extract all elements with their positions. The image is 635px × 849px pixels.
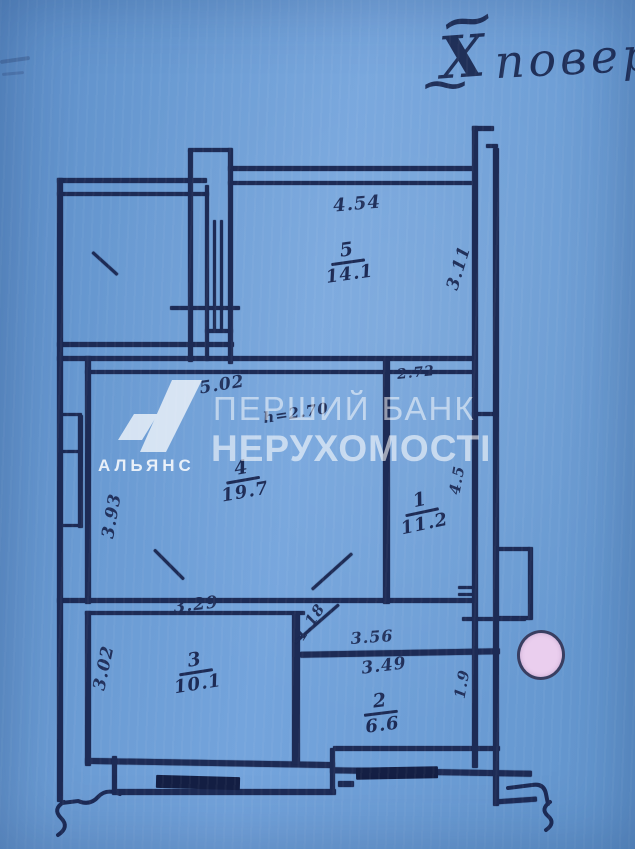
wall-segment — [153, 549, 185, 581]
wall-segment — [493, 148, 499, 806]
watermark-brand-line2: НЕРУХОМОСТІ — [211, 428, 491, 470]
wall-segment — [57, 192, 209, 196]
wall-segment — [188, 148, 232, 152]
wall-segment — [112, 756, 117, 792]
wall-segment — [213, 220, 216, 332]
wall-segment — [228, 181, 474, 185]
floor-annotation-tilde-bottom: ~ — [419, 60, 472, 109]
window-symbol — [356, 766, 438, 779]
dim-room3-depth: 3.02 — [89, 644, 118, 693]
wall-segment — [78, 415, 83, 528]
scan-smudge — [2, 71, 24, 76]
wall-segment — [57, 356, 475, 361]
wall-segment — [188, 150, 193, 362]
room-3-label: 3 10.1 — [169, 647, 223, 696]
dim-room5-width: 4.54 — [332, 191, 381, 216]
wall-segment — [85, 611, 91, 766]
dim-hallway-width: 3.56 — [350, 626, 394, 648]
wall-segment — [311, 552, 353, 590]
wall-segment — [228, 148, 233, 364]
wall-segment — [91, 251, 118, 276]
room-5-label: 5 14.1 — [321, 238, 374, 287]
wall-segment — [292, 612, 300, 764]
scan-smudge — [0, 56, 30, 64]
wall-segment — [330, 748, 335, 793]
wall-segment — [85, 356, 91, 604]
alliance-logo-icon — [116, 378, 214, 456]
floor-annotation-word: повер — [493, 27, 635, 89]
wall-segment — [494, 547, 530, 551]
wall-segment — [112, 789, 336, 795]
wall-segment — [205, 185, 209, 361]
wall-segment — [220, 220, 223, 332]
room-2-area: 6.6 — [364, 713, 400, 736]
wall-segment — [57, 178, 207, 183]
wall-segment — [57, 598, 475, 603]
watermark-brand-line1: ПЕРШИЙ БАНК — [213, 390, 476, 428]
wall-segment — [228, 166, 474, 171]
floor-plan-scan: ~ Х повер ~ 4.54 5.02 h=2.70 2.72 3.29 3… — [0, 0, 635, 849]
dim-room4-depth: 3.93 — [98, 492, 126, 540]
dim-room2-width: 3.49 — [360, 653, 408, 678]
room-2-label: 2 6.6 — [361, 690, 400, 736]
window-symbol — [156, 775, 240, 790]
marker-dot — [514, 627, 568, 683]
dim-room2-depth: 1.9 — [451, 668, 474, 700]
wall-segment — [85, 370, 473, 374]
wall-segment — [528, 547, 533, 620]
room-1-label: 1 11.2 — [394, 486, 450, 538]
alliance-logo-caption: АЛЬЯНС — [98, 456, 195, 476]
wall-segment — [85, 611, 305, 615]
wall-segment — [338, 781, 354, 787]
dim-room5-depth: 3.11 — [443, 243, 475, 292]
wall-segment — [57, 178, 63, 802]
